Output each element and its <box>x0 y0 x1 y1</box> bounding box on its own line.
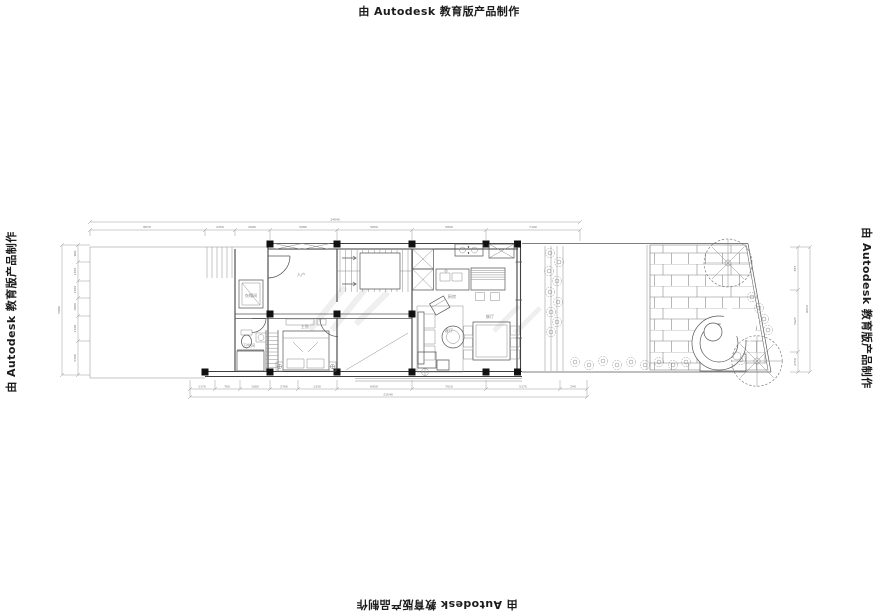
dim-label: 3300 <box>73 354 77 362</box>
dim-label-overall: 21540 <box>383 393 393 397</box>
autocad-floorplan-canvas: 由 Autodesk 教育版产品制作 由 Autodesk 教育版产品制作 由 … <box>0 0 878 616</box>
kitchen-fixtures <box>436 244 514 301</box>
dim-label: 6950 <box>370 385 378 389</box>
floorplan-drawing: 入户 衣帽间 卫生间 主卧 厨房 餐厅 客厅 8670 2250 2690 50… <box>0 0 878 616</box>
faint-watermark <box>310 287 540 333</box>
room-label-cloak: 衣帽间 <box>245 292 258 299</box>
dim-label: 7100 <box>529 225 537 229</box>
dim-label: 1650 <box>73 268 77 276</box>
room-label-dining: 餐厅 <box>486 313 494 320</box>
dim-label-overall: 5980 <box>57 306 61 314</box>
utility-room <box>346 333 408 370</box>
dim-label: 760 <box>224 385 230 389</box>
dim-label: 875 <box>793 266 797 272</box>
dim-label: 1330 <box>313 385 321 389</box>
dim-label-overall: 24940 <box>330 218 340 222</box>
dimension-left: 900 1650 1650 1800 2100 3300 5980 <box>57 243 90 377</box>
dim-label: 2690 <box>248 225 256 229</box>
dim-label: 5175 <box>519 385 527 389</box>
dim-label: 1060 <box>251 385 259 389</box>
room-label-bedroom: 主卧 <box>301 323 309 330</box>
room-label-entry: 入户 <box>297 271 305 278</box>
dim-label: 5080 <box>299 225 307 229</box>
dim-label: 1800 <box>73 303 77 311</box>
elevator-shaft <box>413 249 434 290</box>
dim-label: 2760 <box>280 385 288 389</box>
dim-label: 2100 <box>73 325 77 333</box>
staircase <box>337 250 412 292</box>
room-label-bath: 卫生间 <box>243 342 256 349</box>
dimension-bottom: 1175 760 1060 2760 1330 6950 7010 5175 2… <box>188 380 589 399</box>
dim-label: 900 <box>73 251 77 257</box>
dim-label: 5650 <box>370 225 378 229</box>
dim-label: 5025 <box>793 317 797 325</box>
room-label-living: 客厅 <box>445 327 453 334</box>
dimension-right: 875 5025 2750 8650 <box>790 245 812 374</box>
garden <box>544 239 782 386</box>
dining-set <box>464 322 520 360</box>
room-label-kitchen: 厨房 <box>448 293 456 300</box>
dim-label: 7010 <box>445 385 453 389</box>
dim-label: 1650 <box>73 286 77 294</box>
dim-label: 8670 <box>143 225 151 229</box>
dim-label-overall: 8650 <box>805 305 809 313</box>
planting-bed-vertical <box>544 248 563 336</box>
dim-label: 240 <box>570 385 576 389</box>
dim-label: 2250 <box>216 225 224 229</box>
dimension-top: 8670 2250 2690 5080 5650 5650 7100 24940 <box>88 218 582 242</box>
living-room-furniture <box>417 296 464 376</box>
dim-label: 1175 <box>198 385 206 389</box>
dim-label: 5650 <box>445 225 453 229</box>
dim-label: 2750 <box>793 358 797 366</box>
